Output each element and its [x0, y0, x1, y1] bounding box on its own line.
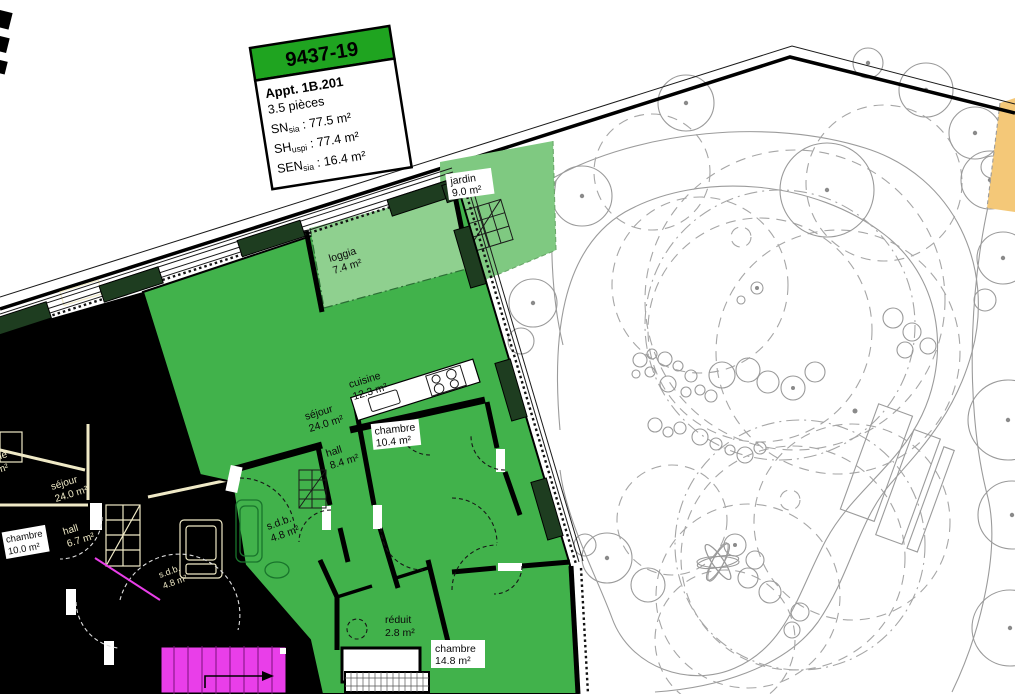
bottom-details — [342, 648, 429, 692]
floorplan-drawing: séjour 24.0 m² hall 6.7 m² cuisine 9.3 m… — [0, 0, 1015, 694]
garden-benches — [836, 404, 961, 552]
apartment-info-box[interactable]: 9437-19 Appt. 1B.201 3.5 pièces SNsia : … — [250, 26, 412, 189]
palm-plant-icon — [696, 541, 739, 584]
garden-dashed-canopies — [594, 105, 962, 694]
floorplan-viewport: séjour 24.0 m² hall 6.7 m² cuisine 9.3 m… — [0, 0, 1015, 694]
staircase-magenta — [160, 646, 287, 694]
terrain-orange-wedge — [987, 98, 1015, 212]
label-chambre2-name: chambre — [435, 643, 476, 655]
label-chambre1: chambre 10.4 m² — [371, 419, 421, 450]
garden-paths — [552, 132, 998, 692]
label-chambre2: chambre 14.8 m² — [431, 640, 485, 668]
label-chambre2-area: 14.8 m² — [435, 655, 471, 667]
label-reduit-name: réduit — [385, 614, 411, 626]
edge-building-fragments — [0, 10, 13, 75]
garden-tree-trunks — [531, 61, 1014, 630]
window-hatch — [345, 672, 429, 692]
label-reduit-area: 2.8 m² — [385, 627, 415, 639]
